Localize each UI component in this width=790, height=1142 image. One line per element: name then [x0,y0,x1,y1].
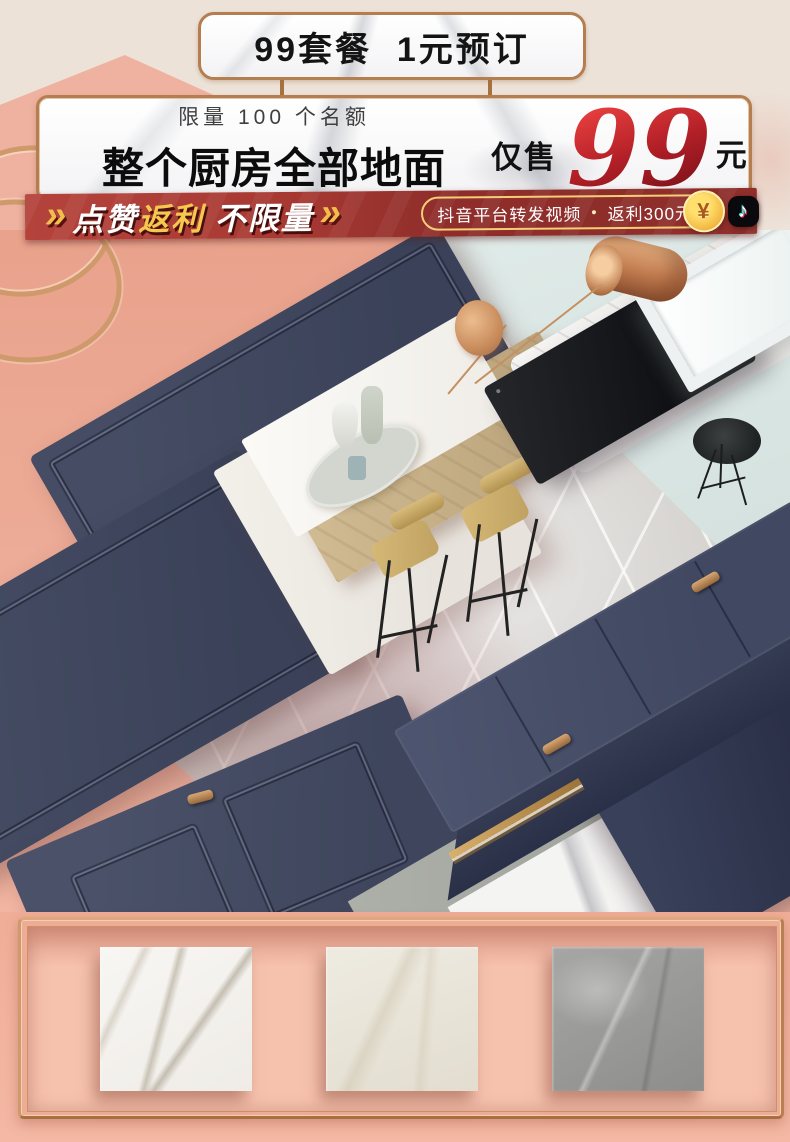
rebate-ribbon[interactable]: » 点赞 返利 不限量 » 抖音平台转发视频 • 返利300元 ¥ ♪ [25,188,757,240]
room-scene [0,230,790,912]
rebate-label: 返利 [138,193,204,239]
top-badge-label: 99套餐 1元预订 [254,22,530,71]
pill-bullet: • [591,204,597,221]
bar-stool [442,466,562,666]
sample-board-section [0,912,790,1142]
tile-sample-white-marble [100,947,252,1091]
price-prefix: 仅售 [491,132,557,177]
door-handle [186,789,214,805]
frame-inner [27,926,777,1112]
top-badge[interactable]: 99套餐 1元预订 [198,12,586,80]
limit-note: 限量 100 个名额 [91,101,457,131]
unlimited-label: 不限量 [204,192,314,238]
cup [348,456,366,480]
price-unit: 元 [716,130,747,175]
offer-headline: 整个厨房全部地面 [91,135,457,196]
tile-sample-grey-marble [552,947,704,1091]
price-value: 99 [567,106,712,191]
promo-poster: 99套餐 1元预订 限量 100 个名额 整个厨房全部地面 仅售 99 元 » … [0,0,790,1142]
tiktok-icon: ♪ [728,196,759,227]
pill-platform-text: 抖音平台转发视频 [437,200,581,226]
pill-rebate-text: 返利300元 [608,199,694,225]
tile-sample-cream-marble [326,947,478,1091]
copper-frame [18,917,784,1119]
chevrons-left-icon: » [45,196,66,234]
yuan-coin-icon: ¥ [683,190,725,232]
chevrons-right-icon: » [320,193,341,231]
douyin-rebate-pill[interactable]: 抖音平台转发视频 • 返利300元 ¥ ♪ [421,194,709,231]
sage-vase [361,386,383,444]
price-block: 仅售 99 元 [491,106,747,191]
offer-text-block: 限量 100 个名额 整个厨房全部地面 [91,101,457,196]
offer-banner[interactable]: 限量 100 个名额 整个厨房全部地面 仅售 99 元 [36,95,752,202]
like-label: 点赞 [72,194,138,240]
rebate-slogan: » 点赞 返利 不限量 » [39,192,347,240]
